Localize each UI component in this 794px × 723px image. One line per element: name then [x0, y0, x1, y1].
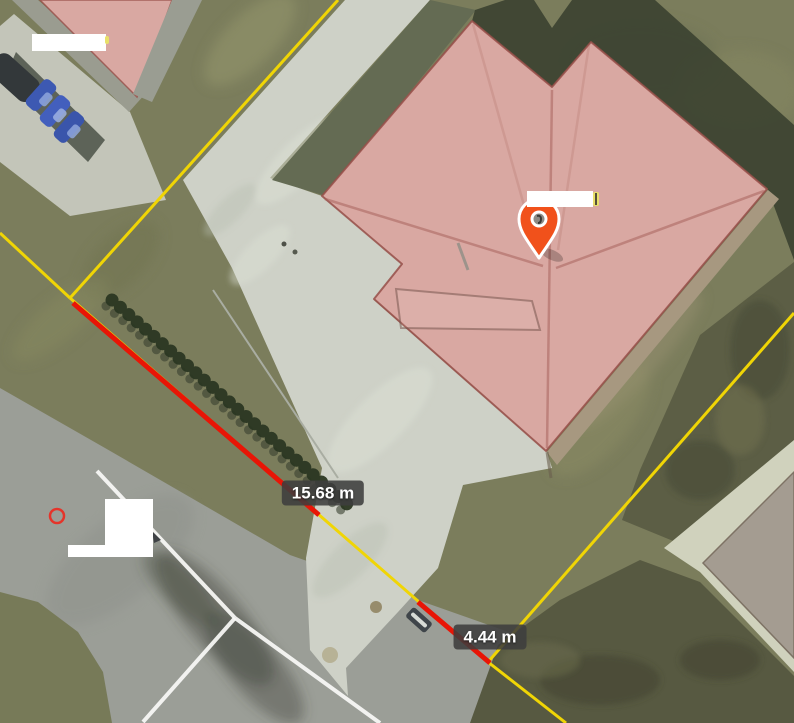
measurement-label-2: 4.44 m [454, 625, 527, 650]
redaction-box [68, 545, 153, 557]
aerial-map-canvas [0, 0, 794, 723]
redaction-box [32, 34, 106, 51]
label-speck [593, 192, 599, 206]
label-speck [105, 36, 109, 44]
measurement-label-1: 15.68 m [282, 481, 364, 506]
redaction-box [527, 191, 593, 207]
aerial-map[interactable]: 15.68 m 4.44 m [0, 0, 794, 723]
